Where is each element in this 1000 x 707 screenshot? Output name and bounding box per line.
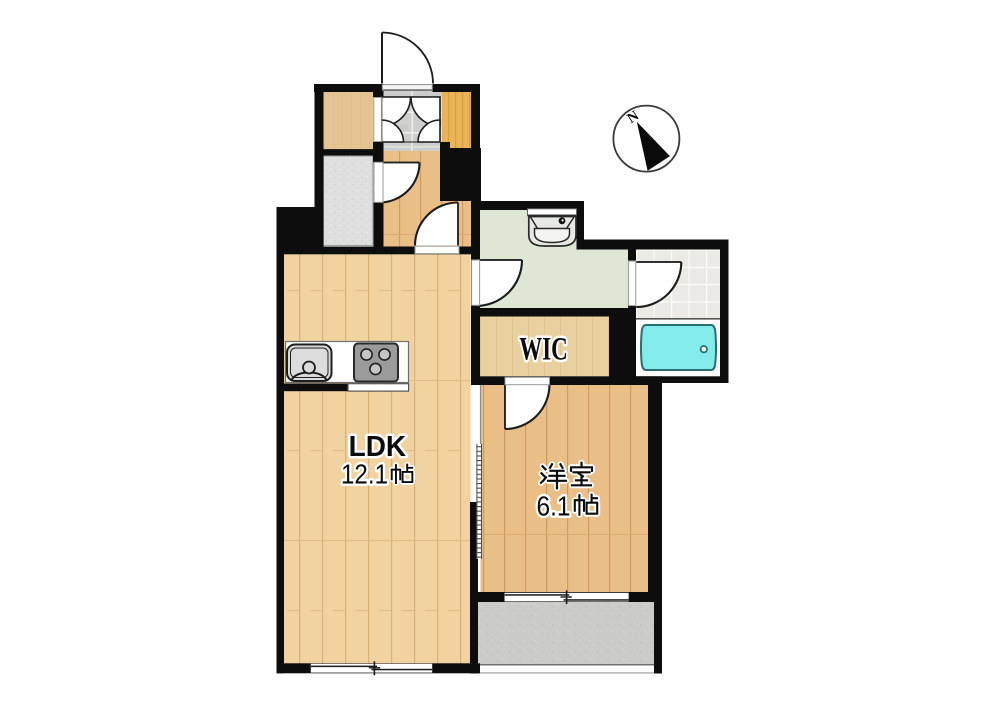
svg-text:12.1: 12.1	[341, 459, 388, 490]
svg-text:6.1: 6.1	[537, 491, 571, 522]
svg-text:WIC: WIC	[519, 332, 568, 368]
